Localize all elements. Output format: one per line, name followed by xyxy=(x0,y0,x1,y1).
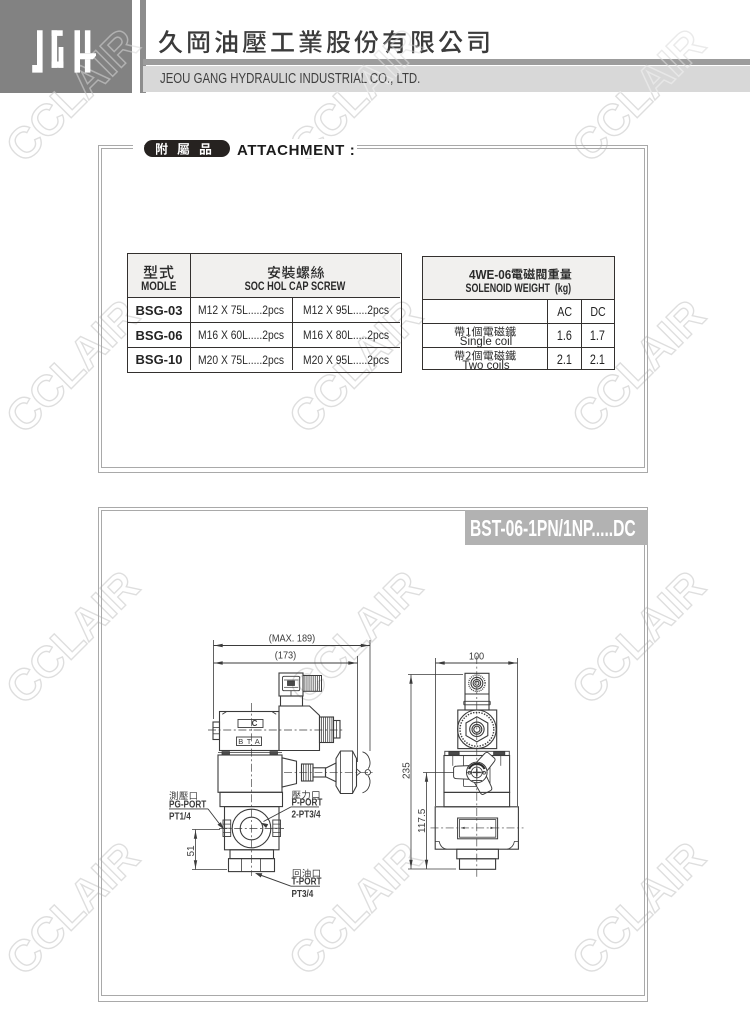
svg-text:PT3/4: PT3/4 xyxy=(292,888,315,899)
svg-text:51: 51 xyxy=(186,845,197,857)
svg-text:PG-PORT: PG-PORT xyxy=(169,797,206,809)
svg-text:117.5: 117.5 xyxy=(417,808,428,833)
svg-text:PT1/4: PT1/4 xyxy=(169,811,192,822)
svg-text:2-PT3/4: 2-PT3/4 xyxy=(292,809,322,820)
svg-text:C: C xyxy=(252,719,258,728)
svg-text:(173): (173) xyxy=(275,650,296,661)
svg-text:(MAX. 189): (MAX. 189) xyxy=(269,633,315,644)
svg-text:B: B xyxy=(238,737,243,746)
svg-text:T-PORT: T-PORT xyxy=(292,875,322,887)
svg-text:P-PORT: P-PORT xyxy=(292,796,323,808)
svg-text:T: T xyxy=(247,737,252,746)
svg-text:A: A xyxy=(255,737,260,746)
svg-text:235: 235 xyxy=(401,762,412,779)
